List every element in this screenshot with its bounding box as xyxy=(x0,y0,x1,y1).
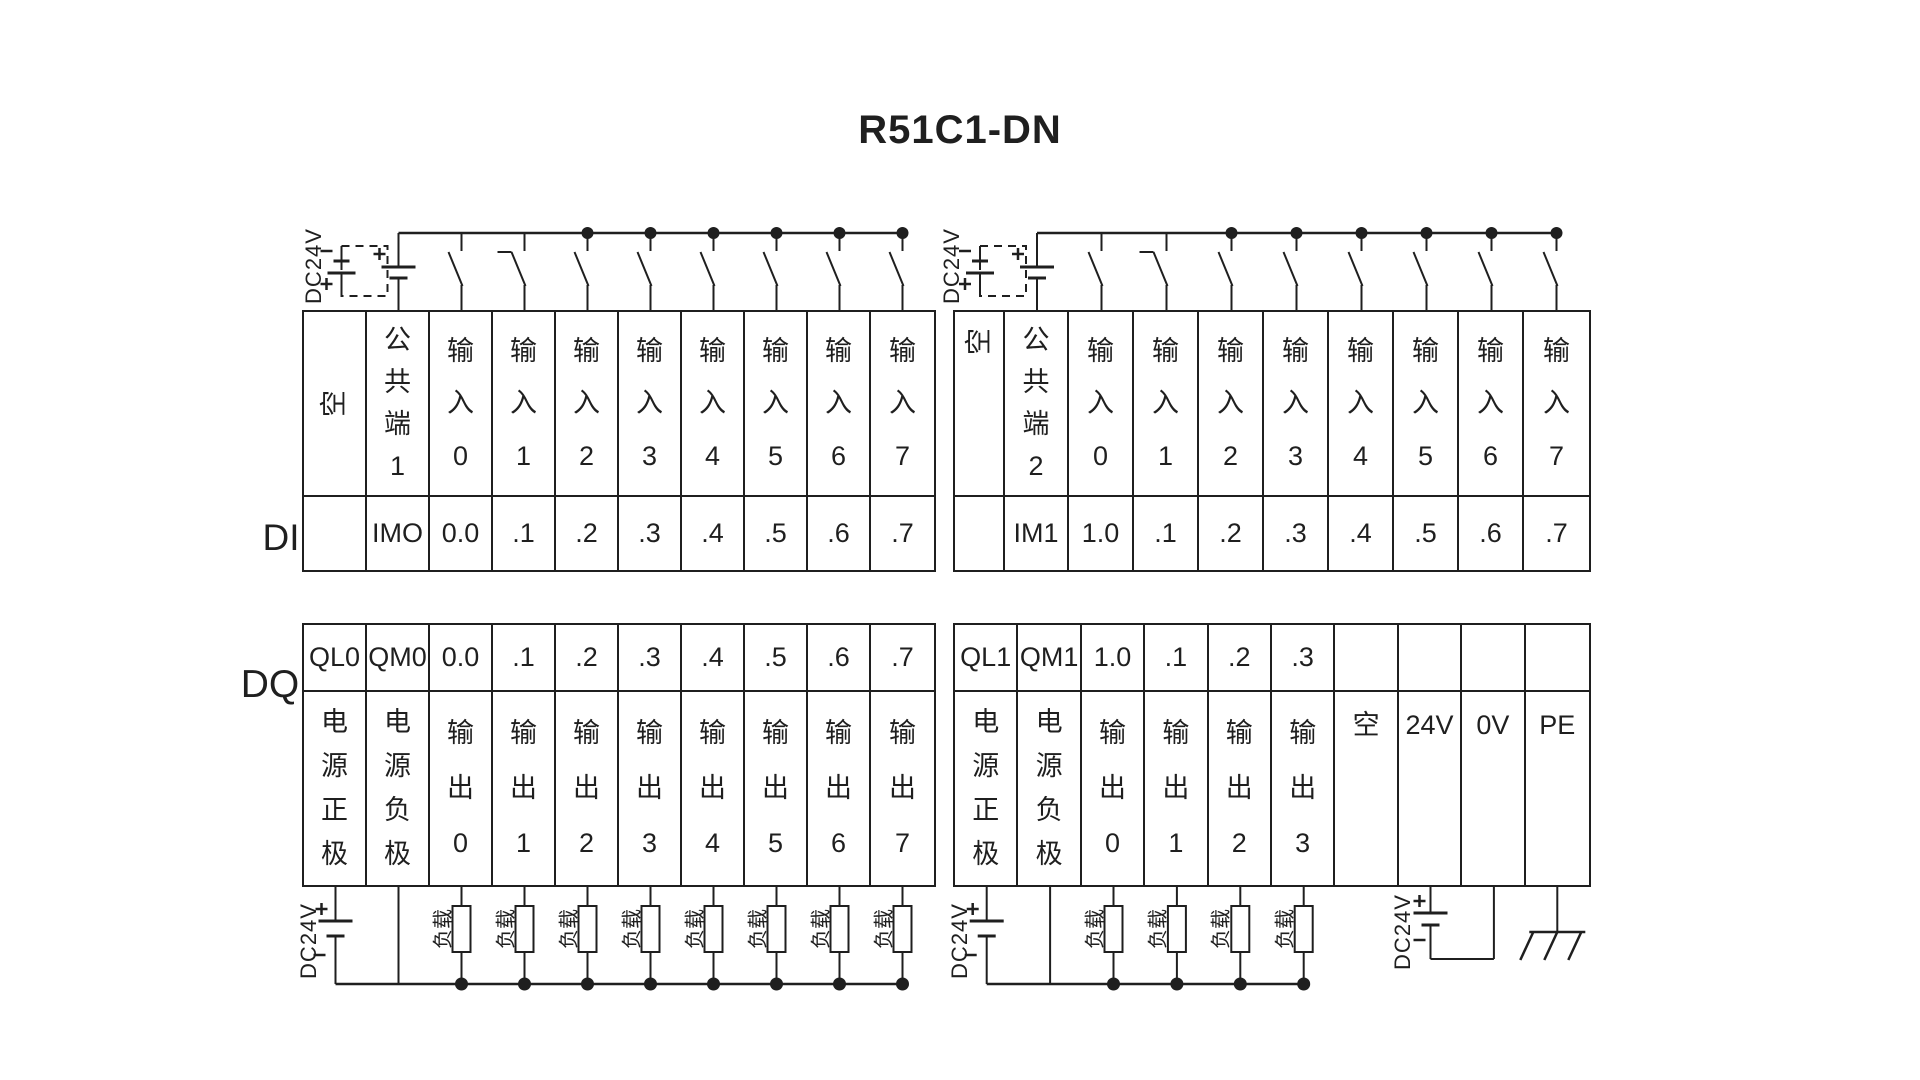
load-label: 负载 xyxy=(426,909,455,949)
dq_left-junction-dot xyxy=(644,978,657,991)
di_left-junction-dot xyxy=(897,227,909,239)
di_right-value-2: 1.0 xyxy=(1069,497,1134,570)
load-label: 负载 xyxy=(678,909,707,949)
dq_left-value-7: .5 xyxy=(745,625,808,692)
dq_right-header-1: 电源负极 xyxy=(1018,692,1081,885)
dc24v-label: DC24V xyxy=(1390,894,1416,970)
di_right-header-6: 输入4 xyxy=(1329,312,1394,497)
di_left-switch-blade xyxy=(449,252,463,286)
dq_right-value-5: .3 xyxy=(1272,625,1335,692)
load-label: 负载 xyxy=(1205,909,1234,949)
di_right-junction-dot xyxy=(1226,227,1238,239)
di_right-table: 空公共端2IM1输入01.0输入1.1输入2.2输入3.3输入4.4输入5.5输… xyxy=(953,310,1591,572)
di_right-switch-blade xyxy=(1349,252,1363,286)
di_left-header-7: 输入5 xyxy=(745,312,808,497)
dq_right-value-4: .2 xyxy=(1209,625,1272,692)
dq_right-value-2: 1.0 xyxy=(1082,625,1145,692)
dq_left-header-4: 输出2 xyxy=(556,692,619,885)
dq_right-header-4: 输出2 xyxy=(1209,692,1272,885)
di_right-switch-blade xyxy=(1089,252,1103,286)
di_left-value-0 xyxy=(304,497,367,570)
load-label: 负载 xyxy=(552,909,581,949)
di_left-header-3: 输入1 xyxy=(493,312,556,497)
dc24v-label: DC24V xyxy=(301,228,327,304)
load-label: 负载 xyxy=(489,909,518,949)
di_right-value-3: .1 xyxy=(1134,497,1199,570)
dq_left-header-6: 输出4 xyxy=(682,692,745,885)
di_right-value-9: .7 xyxy=(1524,497,1589,570)
dc24v-label: DC24V xyxy=(296,903,322,979)
di_right-switch-blade xyxy=(1479,252,1493,286)
ground-symbol xyxy=(1544,932,1557,960)
dq_right-value-6 xyxy=(1335,625,1398,692)
di_left-value-4: .2 xyxy=(556,497,619,570)
di_left-value-9: .7 xyxy=(871,497,934,570)
di_right-value-7: .5 xyxy=(1394,497,1459,570)
di_left-table: 空公共端1IMO输入00.0输入1.1输入2.2输入3.3输入4.4输入5.5输… xyxy=(302,310,936,572)
dq_left-value-9: .7 xyxy=(871,625,934,692)
dq_left-value-2: 0.0 xyxy=(430,625,493,692)
di_right-header-9: 输入7 xyxy=(1524,312,1589,497)
di_left-junction-dot xyxy=(645,227,657,239)
dq_left-value-0: QL0 xyxy=(304,625,367,692)
di_right-switch-blade xyxy=(1154,252,1168,286)
di_left-header-5: 输入3 xyxy=(619,312,682,497)
di_left-switch-blade xyxy=(638,252,652,286)
load-label: 负载 xyxy=(741,909,770,949)
dq_left-header-9: 输出7 xyxy=(871,692,934,885)
di_left-header-1: 公共端1 xyxy=(367,312,430,497)
di_left-header-4: 输入2 xyxy=(556,312,619,497)
dq_right-header-0: 电源正极 xyxy=(955,692,1018,885)
dq_right-value-3: .1 xyxy=(1145,625,1208,692)
load-label: 负载 xyxy=(1268,909,1297,949)
plc-wiring-diagram: R51C1-DN DI DQ 空公共端1IMO输入00.0输入1.1输入2.2输… xyxy=(0,0,1920,1080)
dq_left-header-8: 输出6 xyxy=(808,692,871,885)
dq_left-header-3: 输出1 xyxy=(493,692,556,885)
dq_left-header-1: 电源负极 xyxy=(367,692,430,885)
di_right-header-1: 公共端2 xyxy=(1005,312,1069,497)
di_left-value-6: .4 xyxy=(682,497,745,570)
dq_left-header-2: 输出0 xyxy=(430,692,493,885)
dq_left-value-8: .6 xyxy=(808,625,871,692)
dq_right-header-5: 输出3 xyxy=(1272,692,1335,885)
di_left-junction-dot xyxy=(771,227,783,239)
di_left-switch-blade xyxy=(827,252,841,286)
di_left-value-7: .5 xyxy=(745,497,808,570)
dq_right-header-2: 输出0 xyxy=(1082,692,1145,885)
di_right-switch-blade xyxy=(1219,252,1233,286)
load-label: 负载 xyxy=(1078,909,1107,949)
dq_left-value-4: .2 xyxy=(556,625,619,692)
ground-symbol xyxy=(1520,932,1533,960)
dq_left-junction-dot xyxy=(770,978,783,991)
dq_right-junction-dot xyxy=(1107,978,1120,991)
dq_right-junction-dot xyxy=(1234,978,1247,991)
dq_left-junction-dot xyxy=(896,978,909,991)
load-label: 负载 xyxy=(804,909,833,949)
di_right-switch-blade xyxy=(1284,252,1298,286)
dq_right-header-7: 24V xyxy=(1399,692,1462,885)
dq_right-junction-dot xyxy=(1170,978,1183,991)
dq_left-junction-dot xyxy=(518,978,531,991)
dq_right-header-8: 0V xyxy=(1462,692,1525,885)
di_right-header-8: 输入6 xyxy=(1459,312,1524,497)
di_left-header-8: 输入6 xyxy=(808,312,871,497)
di_left-junction-dot xyxy=(708,227,720,239)
di_right-value-6: .4 xyxy=(1329,497,1394,570)
di_left-value-2: 0.0 xyxy=(430,497,493,570)
di_left-header-6: 输入4 xyxy=(682,312,745,497)
di_left-switch-blade xyxy=(512,252,526,286)
dq_left-junction-dot xyxy=(833,978,846,991)
di_right-junction-dot xyxy=(1421,227,1433,239)
dq_left-value-6: .4 xyxy=(682,625,745,692)
load-label: 负载 xyxy=(615,909,644,949)
dc24v-label: DC24V xyxy=(947,903,973,979)
di_right-switch-blade xyxy=(1414,252,1428,286)
dq_right-value-8 xyxy=(1462,625,1525,692)
dq_right-value-1: QM1 xyxy=(1018,625,1081,692)
di_right-header-0: 空 xyxy=(955,312,1005,497)
di_right-junction-dot xyxy=(1486,227,1498,239)
di_right-header-3: 输入1 xyxy=(1134,312,1199,497)
di_left-header-9: 输入7 xyxy=(871,312,934,497)
dq_right-load-resistor xyxy=(1168,906,1186,952)
dq_left-header-7: 输出5 xyxy=(745,692,808,885)
dq_right-value-9 xyxy=(1526,625,1589,692)
di_left-value-5: .3 xyxy=(619,497,682,570)
dq_left-header-5: 输出3 xyxy=(619,692,682,885)
di_left-switch-blade xyxy=(575,252,589,286)
ground-symbol xyxy=(1568,932,1581,960)
dq_right-value-0: QL1 xyxy=(955,625,1018,692)
di_left-switch-blade xyxy=(890,252,904,286)
di_right-junction-dot xyxy=(1356,227,1368,239)
dq_left-junction-dot xyxy=(581,978,594,991)
di_right-header-2: 输入0 xyxy=(1069,312,1134,497)
dq_left-table: QL0电源正极QM0电源负极0.0输出0.1输出1.2输出2.3输出3.4输出4… xyxy=(302,623,936,887)
di_left-header-2: 输入0 xyxy=(430,312,493,497)
di_left-junction-dot xyxy=(834,227,846,239)
di_right-value-4: .2 xyxy=(1199,497,1264,570)
di_right-header-5: 输入3 xyxy=(1264,312,1329,497)
dq_right-junction-dot xyxy=(1297,978,1310,991)
dq_right-table: QL1电源正极QM1电源负极1.0输出0.1输出1.2输出2.3输出3空24V0… xyxy=(953,623,1591,887)
dq_right-value-7 xyxy=(1399,625,1462,692)
di_left-switch-blade xyxy=(701,252,715,286)
di_left-value-1: IMO xyxy=(367,497,430,570)
dq_right-header-9: PE xyxy=(1526,692,1589,885)
di_left-junction-dot xyxy=(582,227,594,239)
di_left-value-8: .6 xyxy=(808,497,871,570)
dq_left-header-0: 电源正极 xyxy=(304,692,367,885)
dq_left-value-5: .3 xyxy=(619,625,682,692)
di_right-value-1: IM1 xyxy=(1005,497,1069,570)
di_right-junction-dot xyxy=(1291,227,1303,239)
dq_left-junction-dot xyxy=(455,978,468,991)
di_right-header-4: 输入2 xyxy=(1199,312,1264,497)
di_right-value-5: .3 xyxy=(1264,497,1329,570)
di_left-value-3: .1 xyxy=(493,497,556,570)
dq_right-load-resistor xyxy=(1231,906,1249,952)
dq_left-value-3: .1 xyxy=(493,625,556,692)
dq_right-header-6: 空 xyxy=(1335,692,1398,885)
di_right-junction-dot xyxy=(1551,227,1563,239)
dc24v-label: DC24V xyxy=(939,228,965,304)
di_left-switch-blade xyxy=(764,252,778,286)
di_right-header-7: 输入5 xyxy=(1394,312,1459,497)
dq_left-junction-dot xyxy=(707,978,720,991)
di_right-value-8: .6 xyxy=(1459,497,1524,570)
di_left-header-0: 空 xyxy=(304,312,367,497)
dq_right-header-3: 输出1 xyxy=(1145,692,1208,885)
di_right-switch-blade xyxy=(1544,252,1558,286)
load-label: 负载 xyxy=(1141,909,1170,949)
load-label: 负载 xyxy=(867,909,896,949)
di_right-value-0 xyxy=(955,497,1005,570)
dq_left-value-1: QM0 xyxy=(367,625,430,692)
